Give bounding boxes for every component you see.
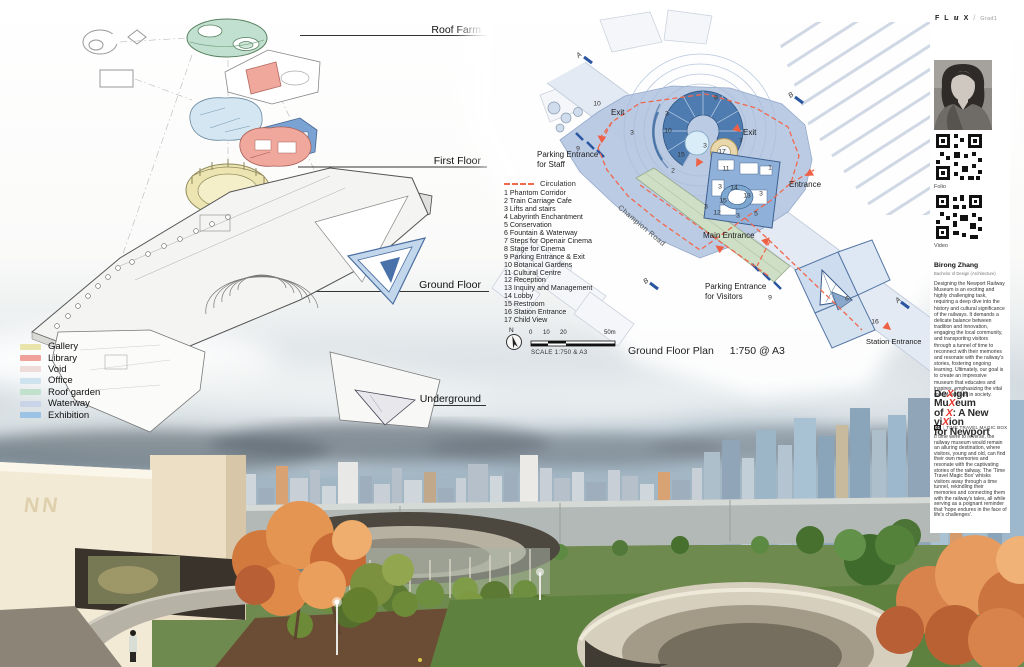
plan-room-number: 10 [664,128,672,135]
plan-key-circulation: Circulation [504,179,576,188]
flux-logo: F L u X / Grad1 [935,13,997,22]
plan-room-number: 12 [713,210,721,217]
folio-label: Folio [934,184,946,190]
plan-room-number: 16 [871,319,879,326]
plan-room-number: 3 [630,130,634,137]
plan-room-number: 8 [714,95,718,102]
author-degree: Bachelor of Design (Architecture) [934,271,996,276]
plan-room-number: 10 [593,101,601,108]
video-qr-code [934,193,984,243]
author-bio: Designing the Newport Railway Museum is … [934,281,1005,398]
exit-label-top: Exit [611,108,624,118]
plan-room-number: 11 [722,166,729,173]
circulation-dash-icon [504,183,534,185]
scale-tick-10: 10 [543,330,550,336]
plan-room-number: 6 [845,296,849,303]
plan-title: Ground Floor Plan1:750 @ A3 [628,345,785,357]
plan-room-number: 3 [665,111,669,118]
exit-label-right: Exit [743,128,756,138]
plan-room-number: 3 [703,143,707,150]
plan-room-number: 3 [759,191,763,198]
folio-qr-code [934,132,984,182]
plan-room-number: 7 [739,138,743,145]
author-portrait [934,60,992,130]
plan-room-number: 3 [718,184,722,191]
plan-room-number: 9 [768,295,772,302]
scale-caption: SCALE 1:750 & A3 [531,349,587,356]
plan-room-number: 14 [730,185,738,192]
author-name: Birong Zhang [934,262,978,269]
circulation-label: Circulation [540,179,576,188]
plan-room-number: 15 [719,198,727,205]
station-entrance-label: Station Entrance [866,337,921,347]
section-kicker: 01 | TIME TRAVEL MAGIC BOX [934,425,1007,430]
plan-room-number: 3 [736,213,740,220]
parking-visitors-label: Parking Entrance for Visitors [705,282,766,301]
section-body: If time were to reverse, the railway mus… [934,435,1007,519]
plan-key-list: 1 Phantom Corridor2 Train Carriage Cafe3… [504,190,592,325]
scale-tick-20: 20 [560,330,567,336]
north-label: N [509,327,514,334]
author-sidebar: F L u X / Grad1 [930,0,1010,533]
main-entrance-label: Main Entrance [703,231,755,241]
video-label: Video [934,243,948,249]
scale-tick-0: 0 [529,330,532,336]
plan-room-number: 17 [718,149,726,156]
scale-tick-50: 50m [604,330,616,336]
presentation-board: NN [0,0,1024,667]
plan-room-number: 2 [671,168,675,175]
plan-room-number: 1 [768,165,772,172]
plan-room-number: 13 [743,193,751,200]
plan-room-number: 15 [677,152,685,159]
plan-room-number: 3 [704,204,708,211]
parking-staff-label: Parking Entrance for Staff [537,150,598,169]
plan-room-number: 5 [754,211,758,218]
plan-key-item: 17 Child View [504,317,592,325]
entrance-label: Entrance [789,180,821,190]
